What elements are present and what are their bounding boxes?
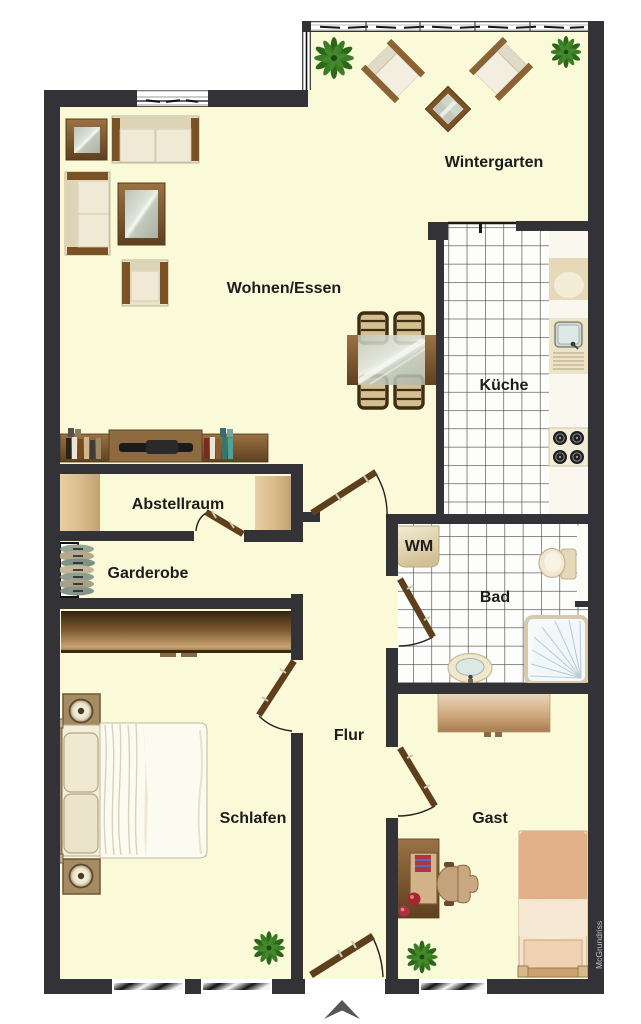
svg-text:Garderobe: Garderobe <box>108 565 189 582</box>
svg-text:McGrundriss: McGrundriss <box>594 921 604 969</box>
svg-text:Abstellraum: Abstellraum <box>132 496 224 513</box>
svg-text:Bad: Bad <box>480 589 510 606</box>
svg-text:Wohnen/Essen: Wohnen/Essen <box>227 280 341 297</box>
svg-text:WM: WM <box>405 538 433 555</box>
svg-text:Flur: Flur <box>334 727 364 744</box>
svg-text:Wintergarten: Wintergarten <box>445 154 544 171</box>
svg-text:Küche: Küche <box>480 377 529 394</box>
svg-text:Schlafen: Schlafen <box>220 810 287 827</box>
svg-text:Gast: Gast <box>472 810 508 827</box>
